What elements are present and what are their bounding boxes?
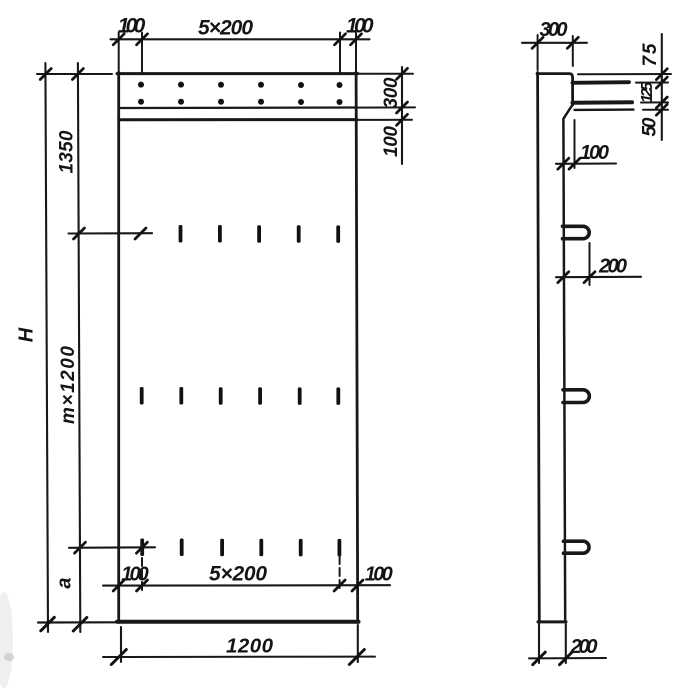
svg-text:a: a — [54, 577, 76, 588]
svg-text:5×200: 5×200 — [198, 16, 253, 39]
svg-text:50: 50 — [640, 117, 661, 136]
svg-text:100: 100 — [365, 564, 393, 586]
svg-text:1350: 1350 — [57, 130, 78, 173]
svg-text:300: 300 — [540, 19, 568, 41]
svg-text:5×200: 5×200 — [209, 563, 267, 586]
svg-text:75: 75 — [640, 43, 661, 66]
svg-text:1200: 1200 — [226, 635, 274, 658]
svg-text:125: 125 — [639, 81, 656, 103]
svg-text:100: 100 — [381, 126, 402, 157]
svg-text:100: 100 — [121, 564, 149, 586]
svg-text:100: 100 — [346, 14, 374, 37]
svg-text:H: H — [16, 327, 38, 342]
svg-text:200: 200 — [598, 256, 627, 278]
svg-text:200: 200 — [570, 636, 598, 658]
svg-text:m×1200: m×1200 — [58, 346, 79, 424]
svg-text:100: 100 — [580, 142, 609, 164]
svg-text:100: 100 — [118, 15, 146, 38]
svg-text:300: 300 — [381, 77, 402, 108]
